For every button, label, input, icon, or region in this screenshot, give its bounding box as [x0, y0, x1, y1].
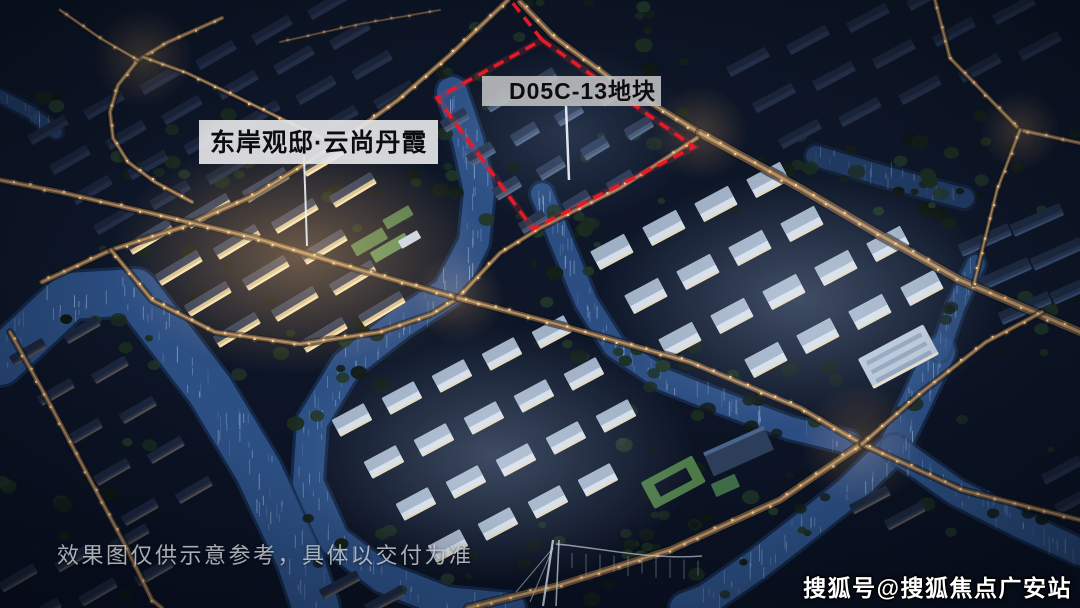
street-light: [390, 17, 392, 19]
street-light: [116, 528, 118, 530]
street-light: [21, 355, 23, 357]
tree: [636, 1, 650, 12]
tree: [1040, 349, 1049, 356]
tree: [976, 192, 985, 199]
junction-glow: [93, 7, 193, 107]
project-name-label: 东岸观邸·云尚丹霞: [199, 120, 438, 164]
street-light: [340, 26, 342, 28]
street-light: [35, 381, 37, 383]
street-light: [989, 217, 991, 219]
street-light: [63, 270, 65, 272]
street-light: [973, 81, 975, 83]
street-light: [373, 114, 375, 116]
street-light: [425, 76, 427, 78]
tree: [846, 146, 856, 154]
tree: [742, 490, 759, 504]
tree: [956, 415, 968, 425]
street-light: [14, 337, 16, 339]
tree: [165, 124, 179, 135]
street-light: [50, 406, 52, 408]
street-light: [936, 7, 938, 9]
street-light: [1028, 507, 1030, 509]
tree: [998, 349, 1006, 356]
street-light: [323, 31, 325, 33]
street-light: [929, 473, 931, 475]
street-light: [786, 493, 788, 495]
street-light: [195, 29, 197, 31]
street-light: [1023, 322, 1025, 324]
tree: [944, 147, 959, 159]
street-light: [414, 86, 416, 88]
street-light: [463, 39, 465, 41]
street-light: [504, 248, 506, 250]
street-light: [769, 505, 771, 507]
street-light: [43, 189, 45, 191]
street-light: [440, 63, 442, 65]
street-light: [752, 512, 754, 514]
street-light: [307, 35, 309, 37]
street-light: [949, 57, 951, 59]
street-light: [65, 13, 67, 15]
tree: [546, 266, 563, 280]
street-light: [517, 241, 519, 243]
tree: [794, 504, 806, 514]
street-light: [101, 501, 103, 503]
street-light: [13, 181, 15, 183]
street-light: [993, 204, 995, 206]
street-light: [475, 28, 477, 30]
tree: [658, 198, 666, 204]
street-light: [502, 5, 504, 7]
tree: [110, 313, 127, 327]
aerial-night-render: 东岸观邸·云尚丹霞 D05C-13地块 效果图仅供示意参考，具体以交付为准 搜狐…: [0, 0, 1080, 608]
street-light: [214, 20, 216, 22]
tree: [702, 514, 712, 522]
junction-glow: [652, 85, 748, 181]
street-light: [580, 577, 582, 579]
street-light: [29, 183, 31, 185]
tree: [145, 335, 153, 342]
tree: [933, 188, 948, 200]
tree: [540, 297, 553, 308]
street-light: [287, 39, 289, 41]
street-light: [1064, 323, 1066, 325]
tree: [894, 155, 908, 166]
tree: [987, 508, 999, 518]
street-light: [139, 169, 141, 171]
street-light: [546, 322, 548, 324]
street-light: [229, 91, 231, 93]
tree: [583, 266, 595, 275]
street-light: [1063, 516, 1065, 518]
tree: [35, 91, 52, 105]
tree: [60, 314, 72, 324]
tree: [583, 592, 601, 606]
street-light: [560, 585, 562, 587]
street-light: [598, 573, 600, 575]
tree: [688, 568, 704, 581]
street-light: [638, 560, 640, 562]
street-light: [529, 589, 531, 591]
street-light: [263, 108, 265, 110]
junction-glow: [980, 90, 1060, 170]
street-light: [714, 527, 716, 529]
street-light: [566, 325, 568, 327]
street-light: [984, 94, 986, 96]
street-light: [977, 493, 979, 495]
street-light: [83, 25, 85, 27]
street-light: [120, 203, 122, 205]
street-light: [108, 513, 110, 515]
tree: [443, 68, 453, 76]
street-light: [142, 579, 144, 581]
street-light: [584, 331, 586, 333]
street-light: [1005, 331, 1007, 333]
plot-id-label: D05C-13地块: [482, 76, 661, 106]
tree: [635, 12, 644, 19]
street-light: [489, 14, 491, 16]
street-light: [941, 26, 943, 28]
tree: [601, 580, 615, 591]
tree: [691, 522, 698, 528]
street-light: [683, 543, 685, 545]
street-light: [214, 86, 216, 88]
street-light: [1062, 138, 1064, 140]
street-light: [618, 566, 620, 568]
street-light: [95, 489, 97, 491]
junction-glow: [800, 382, 924, 506]
street-light: [408, 15, 410, 17]
street-light: [1020, 307, 1022, 309]
tree: [55, 498, 72, 512]
street-light: [84, 471, 86, 473]
street-light: [43, 393, 45, 395]
tree: [148, 360, 161, 370]
street-light: [944, 480, 946, 482]
street-light: [994, 498, 996, 500]
street-light: [111, 104, 113, 106]
street-light: [944, 40, 946, 42]
street-light: [669, 550, 671, 552]
tree: [119, 590, 132, 600]
tree: [1034, 323, 1048, 334]
tree: [975, 175, 989, 186]
street-light: [1004, 170, 1006, 172]
tree: [679, 58, 689, 66]
tree: [912, 135, 929, 148]
tree: [635, 38, 653, 52]
street-light: [1013, 502, 1015, 504]
street-light: [696, 538, 698, 540]
tree: [303, 514, 314, 523]
street-light: [477, 604, 479, 606]
street-light: [69, 440, 71, 442]
tree: [119, 342, 133, 353]
tree: [142, 439, 157, 451]
street-light: [984, 237, 986, 239]
street-light: [76, 265, 78, 267]
tree: [803, 530, 811, 537]
tree: [771, 429, 782, 438]
street-light: [754, 161, 756, 163]
street-light: [964, 72, 966, 74]
street-light: [731, 519, 733, 521]
tree: [513, 32, 525, 42]
source-watermark: 搜狐号@搜狐焦点广安站: [803, 569, 1072, 603]
street-light: [387, 106, 389, 108]
junction-glow: [412, 252, 504, 344]
street-light: [30, 368, 32, 370]
street-light: [553, 34, 555, 36]
disclaimer-watermark: 效果图仅供示意参考，具体以交付为准: [57, 538, 474, 570]
tree: [920, 168, 936, 181]
street-light: [997, 185, 999, 187]
street-light: [429, 10, 431, 12]
street-light: [1037, 312, 1039, 314]
street-light: [126, 160, 128, 162]
street-light: [58, 423, 60, 425]
tree: [231, 368, 247, 380]
street-light: [47, 276, 49, 278]
street-light: [452, 50, 454, 52]
tree: [739, 559, 748, 566]
street-light: [1046, 319, 1048, 321]
tree: [34, 543, 41, 549]
street-light: [508, 308, 510, 310]
street-light: [63, 191, 65, 193]
street-light: [111, 124, 113, 126]
tree: [122, 438, 132, 446]
tree: [785, 472, 793, 479]
street-light: [100, 201, 102, 203]
street-light: [1043, 510, 1045, 512]
street-light: [90, 257, 92, 259]
tree: [1047, 447, 1054, 453]
street-light: [959, 488, 961, 490]
tree: [1035, 514, 1048, 524]
tree: [720, 590, 731, 598]
street-light: [490, 602, 492, 604]
tree: [529, 261, 538, 268]
street-light: [248, 103, 250, 105]
street-light: [526, 5, 528, 7]
tree: [642, 542, 653, 551]
street-light: [799, 484, 801, 486]
street-light: [527, 317, 529, 319]
street-light: [197, 78, 199, 80]
street-light: [1004, 297, 1006, 299]
street-light: [510, 597, 512, 599]
street-light: [534, 230, 536, 232]
street-light: [374, 20, 376, 22]
street-light: [75, 452, 77, 454]
street-light: [354, 24, 356, 26]
tree: [945, 527, 957, 536]
street-light: [402, 96, 404, 98]
street-light: [150, 600, 152, 602]
tree: [643, 27, 652, 34]
tree: [956, 188, 964, 195]
street-light: [537, 19, 539, 21]
street-light: [116, 142, 118, 144]
street-light: [603, 338, 605, 340]
street-light: [79, 197, 81, 199]
